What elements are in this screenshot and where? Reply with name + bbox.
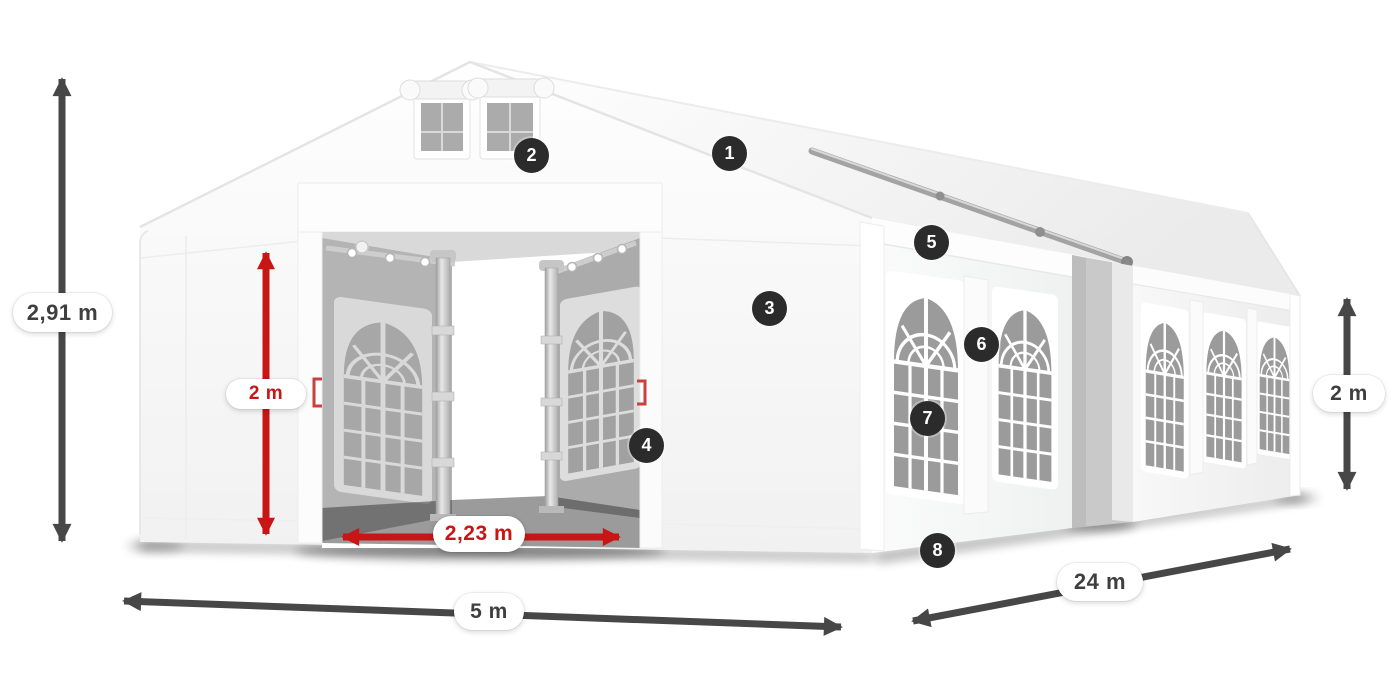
dimension-label-side-height: 2 m	[1313, 375, 1385, 412]
side-wall-near	[860, 218, 1072, 553]
callout-4[interactable]: 4	[629, 428, 664, 463]
dimension-label-entrance-height: 2 m	[226, 379, 306, 409]
window-strap	[964, 276, 988, 514]
side-window	[886, 270, 966, 505]
window-strap	[1247, 308, 1257, 465]
callout-1[interactable]: 1	[712, 136, 747, 171]
side-wall-far	[1133, 266, 1300, 522]
interior-left-window	[334, 296, 432, 505]
callout-5[interactable]: 5	[914, 225, 949, 260]
dimension-label-side-length: 24 m	[1057, 563, 1143, 601]
side-window	[992, 286, 1058, 490]
callout-2[interactable]: 2	[514, 138, 549, 173]
corner-post-cover	[1290, 294, 1300, 496]
side-window	[1256, 321, 1293, 460]
side-window	[1141, 302, 1189, 479]
corner-post-cover	[860, 222, 884, 551]
side-open-section	[1072, 255, 1133, 528]
callout-6[interactable]: 6	[964, 327, 999, 362]
dimension-label-total-height: 2,91 m	[13, 293, 112, 332]
entrance	[298, 183, 662, 548]
dimension-label-front-width: 5 m	[454, 593, 524, 630]
callout-7[interactable]: 7	[910, 401, 945, 436]
window-strap	[1190, 300, 1203, 475]
callout-8[interactable]: 8	[920, 533, 955, 568]
side-window	[1202, 312, 1246, 469]
tent-dimension-diagram: 2,91 m 2 m 2,23 m 5 m 24 m 2 m 1 2 3 4 5…	[0, 0, 1400, 700]
callout-3[interactable]: 3	[752, 291, 787, 326]
dimension-label-entrance-width: 2,23 m	[433, 516, 525, 552]
tent-illustration	[0, 0, 1400, 700]
door-frame-right	[640, 232, 662, 548]
